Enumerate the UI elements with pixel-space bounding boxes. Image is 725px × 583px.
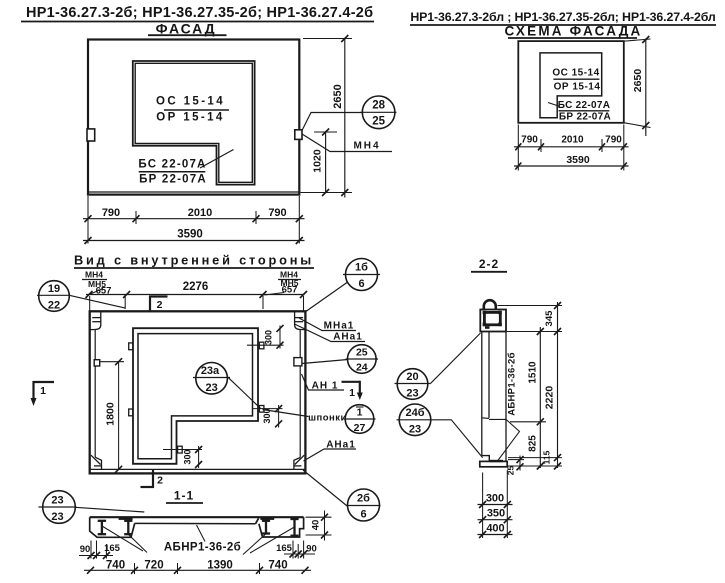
- svg-text:МН4: МН4: [85, 270, 103, 280]
- svg-text:23: 23: [51, 495, 63, 507]
- svg-text:657: 657: [282, 285, 298, 296]
- svg-text:90: 90: [80, 544, 91, 555]
- svg-text:Вид с внутренней стороны: Вид с внутренней стороны: [74, 253, 314, 268]
- svg-text:6: 6: [360, 509, 366, 521]
- svg-text:24: 24: [356, 362, 368, 374]
- svg-text:1: 1: [40, 385, 46, 397]
- svg-text:720: 720: [144, 560, 163, 572]
- svg-text:23: 23: [51, 511, 63, 523]
- svg-text:23: 23: [205, 382, 217, 394]
- svg-text:2: 2: [157, 475, 163, 487]
- svg-text:2010: 2010: [561, 135, 584, 146]
- svg-text:1390: 1390: [207, 560, 233, 572]
- svg-text:300: 300: [183, 449, 193, 464]
- svg-text:24б: 24б: [405, 407, 424, 419]
- svg-text:1: 1: [357, 407, 363, 419]
- svg-text:790: 790: [268, 207, 286, 219]
- svg-text:345: 345: [544, 310, 555, 327]
- svg-text:1510: 1510: [528, 361, 539, 384]
- svg-text:790: 790: [102, 207, 120, 219]
- svg-text:400: 400: [486, 523, 504, 535]
- svg-text:300: 300: [264, 330, 274, 345]
- svg-text:825: 825: [528, 435, 539, 452]
- svg-text:НР1-36.27.3-2бл ; НР1-36.27.35: НР1-36.27.3-2бл ; НР1-36.27.35-2бл; НР1-…: [410, 10, 715, 24]
- svg-text:25: 25: [356, 347, 368, 359]
- svg-text:90: 90: [306, 544, 317, 555]
- svg-text:БР 22-07А: БР 22-07А: [139, 174, 207, 186]
- svg-text:2220: 2220: [544, 386, 556, 410]
- svg-text:1: 1: [349, 387, 355, 399]
- svg-text:БР 22-07А: БР 22-07А: [559, 112, 611, 123]
- svg-text:БС 22-07А: БС 22-07А: [138, 159, 206, 171]
- svg-text:1020: 1020: [312, 149, 324, 173]
- svg-text:28: 28: [372, 100, 385, 112]
- svg-text:23а: 23а: [201, 365, 220, 377]
- svg-text:2650: 2650: [332, 84, 344, 108]
- svg-text:1б: 1б: [355, 262, 368, 274]
- svg-text:165: 165: [276, 543, 293, 554]
- svg-text:2-2: 2-2: [479, 257, 499, 271]
- svg-text:740: 740: [106, 560, 125, 572]
- svg-text:ОР 15-14: ОР 15-14: [156, 112, 224, 124]
- svg-text:2010: 2010: [188, 207, 212, 219]
- svg-text:2276: 2276: [183, 281, 209, 293]
- svg-text:350: 350: [487, 508, 505, 520]
- svg-text:19: 19: [48, 283, 60, 295]
- svg-text:27: 27: [354, 422, 366, 434]
- svg-text:790: 790: [521, 135, 538, 146]
- svg-text:НР1-36.27.3-2б; НР1-36.27.35-2: НР1-36.27.3-2б; НР1-36.27.35-2б; НР1-36.…: [26, 5, 373, 21]
- svg-text:300: 300: [486, 493, 504, 505]
- svg-text:3590: 3590: [177, 229, 203, 241]
- svg-text:БС 22-07А: БС 22-07А: [558, 100, 611, 111]
- svg-text:1-1: 1-1: [174, 489, 194, 503]
- svg-text:СХЕМА ФАСАДА: СХЕМА ФАСАДА: [504, 24, 642, 39]
- svg-text:АБНР1-36-2б: АБНР1-36-2б: [507, 352, 518, 416]
- svg-text:1800: 1800: [105, 402, 117, 426]
- svg-text:МНа1: МНа1: [324, 321, 355, 332]
- svg-text:3590: 3590: [566, 154, 590, 166]
- svg-text:АБНР1-36-2б: АБНР1-36-2б: [164, 542, 241, 554]
- svg-text:МН4: МН4: [353, 141, 380, 152]
- svg-text:40: 40: [311, 520, 322, 531]
- svg-text:23: 23: [406, 388, 418, 400]
- svg-text:2: 2: [157, 299, 163, 311]
- svg-text:2б: 2б: [357, 493, 370, 505]
- svg-text:ОС 15-14: ОС 15-14: [156, 96, 225, 108]
- svg-text:АНа1: АНа1: [333, 332, 363, 343]
- svg-text:20: 20: [406, 371, 418, 383]
- svg-text:6: 6: [358, 278, 364, 290]
- svg-text:шпонки: шпонки: [308, 413, 347, 424]
- svg-text:790: 790: [605, 135, 622, 146]
- svg-text:740: 740: [268, 560, 287, 572]
- svg-text:ФАСАД: ФАСАД: [156, 21, 217, 37]
- svg-text:23: 23: [409, 423, 421, 435]
- svg-text:22: 22: [48, 300, 60, 312]
- svg-text:25: 25: [372, 116, 385, 128]
- svg-text:165: 165: [104, 543, 121, 554]
- svg-text:ОС 15-14: ОС 15-14: [552, 68, 599, 79]
- svg-text:ОР 15-14: ОР 15-14: [554, 82, 601, 93]
- svg-text:2650: 2650: [632, 69, 644, 93]
- svg-text:115: 115: [542, 450, 552, 464]
